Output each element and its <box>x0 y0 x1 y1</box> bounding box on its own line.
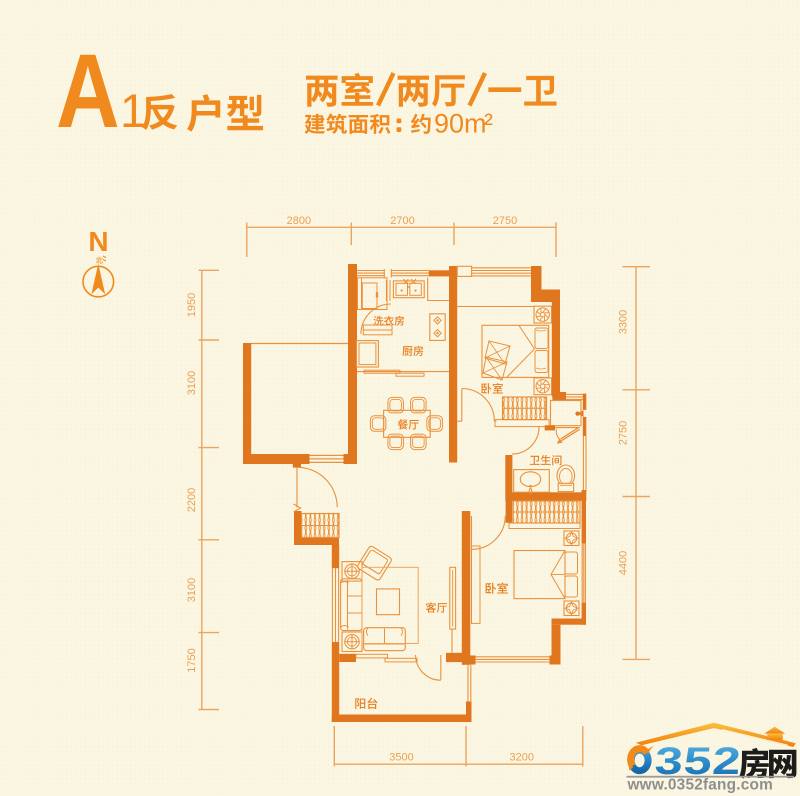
svg-text:1: 1 <box>120 84 146 137</box>
svg-text:1750: 1750 <box>186 648 198 672</box>
svg-text:2750: 2750 <box>493 215 517 227</box>
svg-text:2200: 2200 <box>186 488 198 512</box>
svg-text:2800: 2800 <box>287 215 311 227</box>
svg-text:3500: 3500 <box>389 752 413 764</box>
svg-text:A: A <box>56 32 120 150</box>
svg-text:90m: 90m <box>434 109 487 139</box>
svg-text:2750: 2750 <box>617 421 629 445</box>
svg-text:4400: 4400 <box>617 551 629 575</box>
svg-text:3100: 3100 <box>186 371 198 395</box>
svg-text:www.0352fang.com: www.0352fang.com <box>627 776 773 793</box>
svg-text:²: ² <box>484 109 493 139</box>
svg-text:2700: 2700 <box>390 215 414 227</box>
svg-text:3100: 3100 <box>186 578 198 602</box>
svg-text:N: N <box>88 226 108 257</box>
svg-text:3200: 3200 <box>510 752 534 764</box>
svg-text:3300: 3300 <box>617 310 629 334</box>
svg-text:1950: 1950 <box>186 293 198 317</box>
